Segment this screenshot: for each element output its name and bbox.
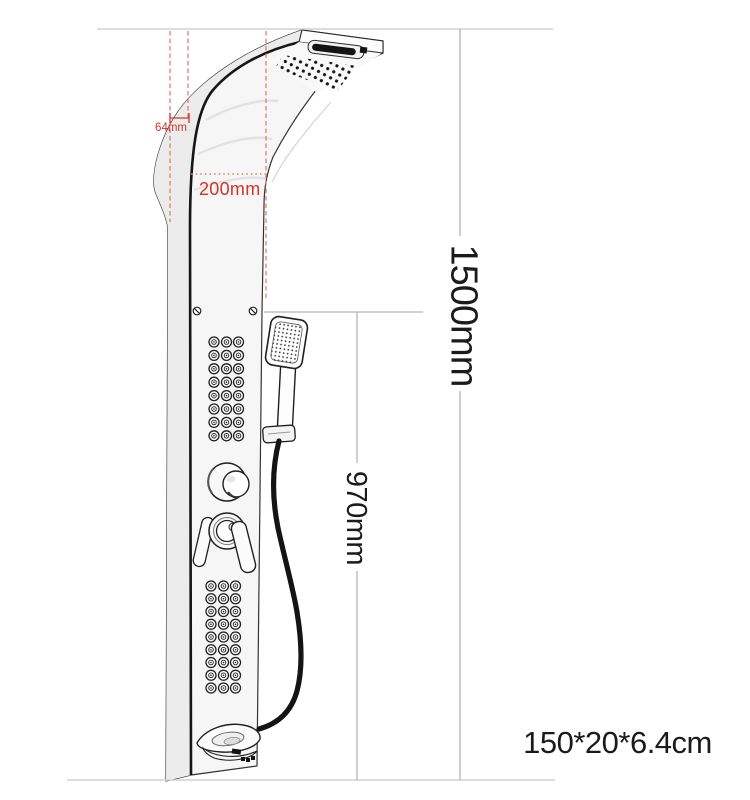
dim-label-overhang: 64mm xyxy=(148,122,187,134)
diagram-canvas: 64mm 200mm 1500mm 970mm 150*20*6.4cm xyxy=(0,0,750,800)
dimension-lines xyxy=(0,0,750,800)
dim-label-hand-shower-height: 970mm xyxy=(341,470,371,566)
overall-size-label: 150*20*6.4cm xyxy=(505,725,730,761)
dim-label-total-height: 1500mm xyxy=(445,245,482,385)
dim-label-head-depth: 200mm xyxy=(199,179,261,200)
